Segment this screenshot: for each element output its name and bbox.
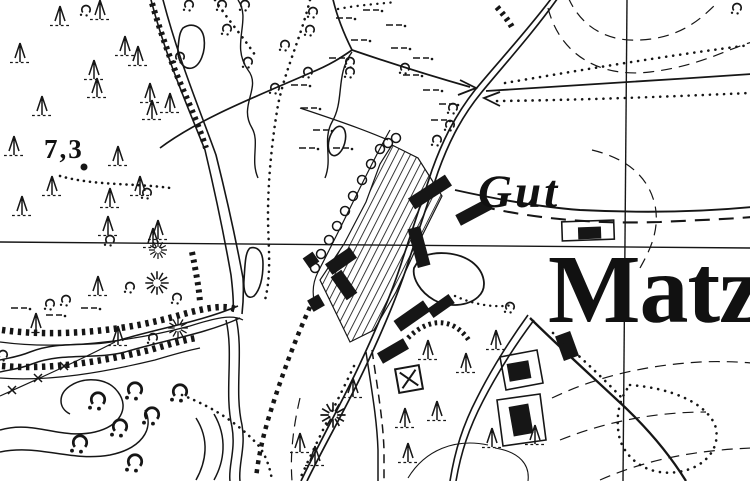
stream (0, 0, 390, 481)
spot-height-label: 7,3 (44, 134, 84, 164)
estate-label: Gut (478, 166, 560, 218)
settlement-label: Matz (548, 236, 750, 344)
map-canvas: 7,3 Gut Matz (0, 0, 750, 481)
conifer-trees (4, 0, 545, 466)
chapel-square-symbol (395, 365, 423, 393)
spot-height-point (81, 164, 88, 171)
map-svg: 7,3 Gut Matz (0, 0, 750, 481)
